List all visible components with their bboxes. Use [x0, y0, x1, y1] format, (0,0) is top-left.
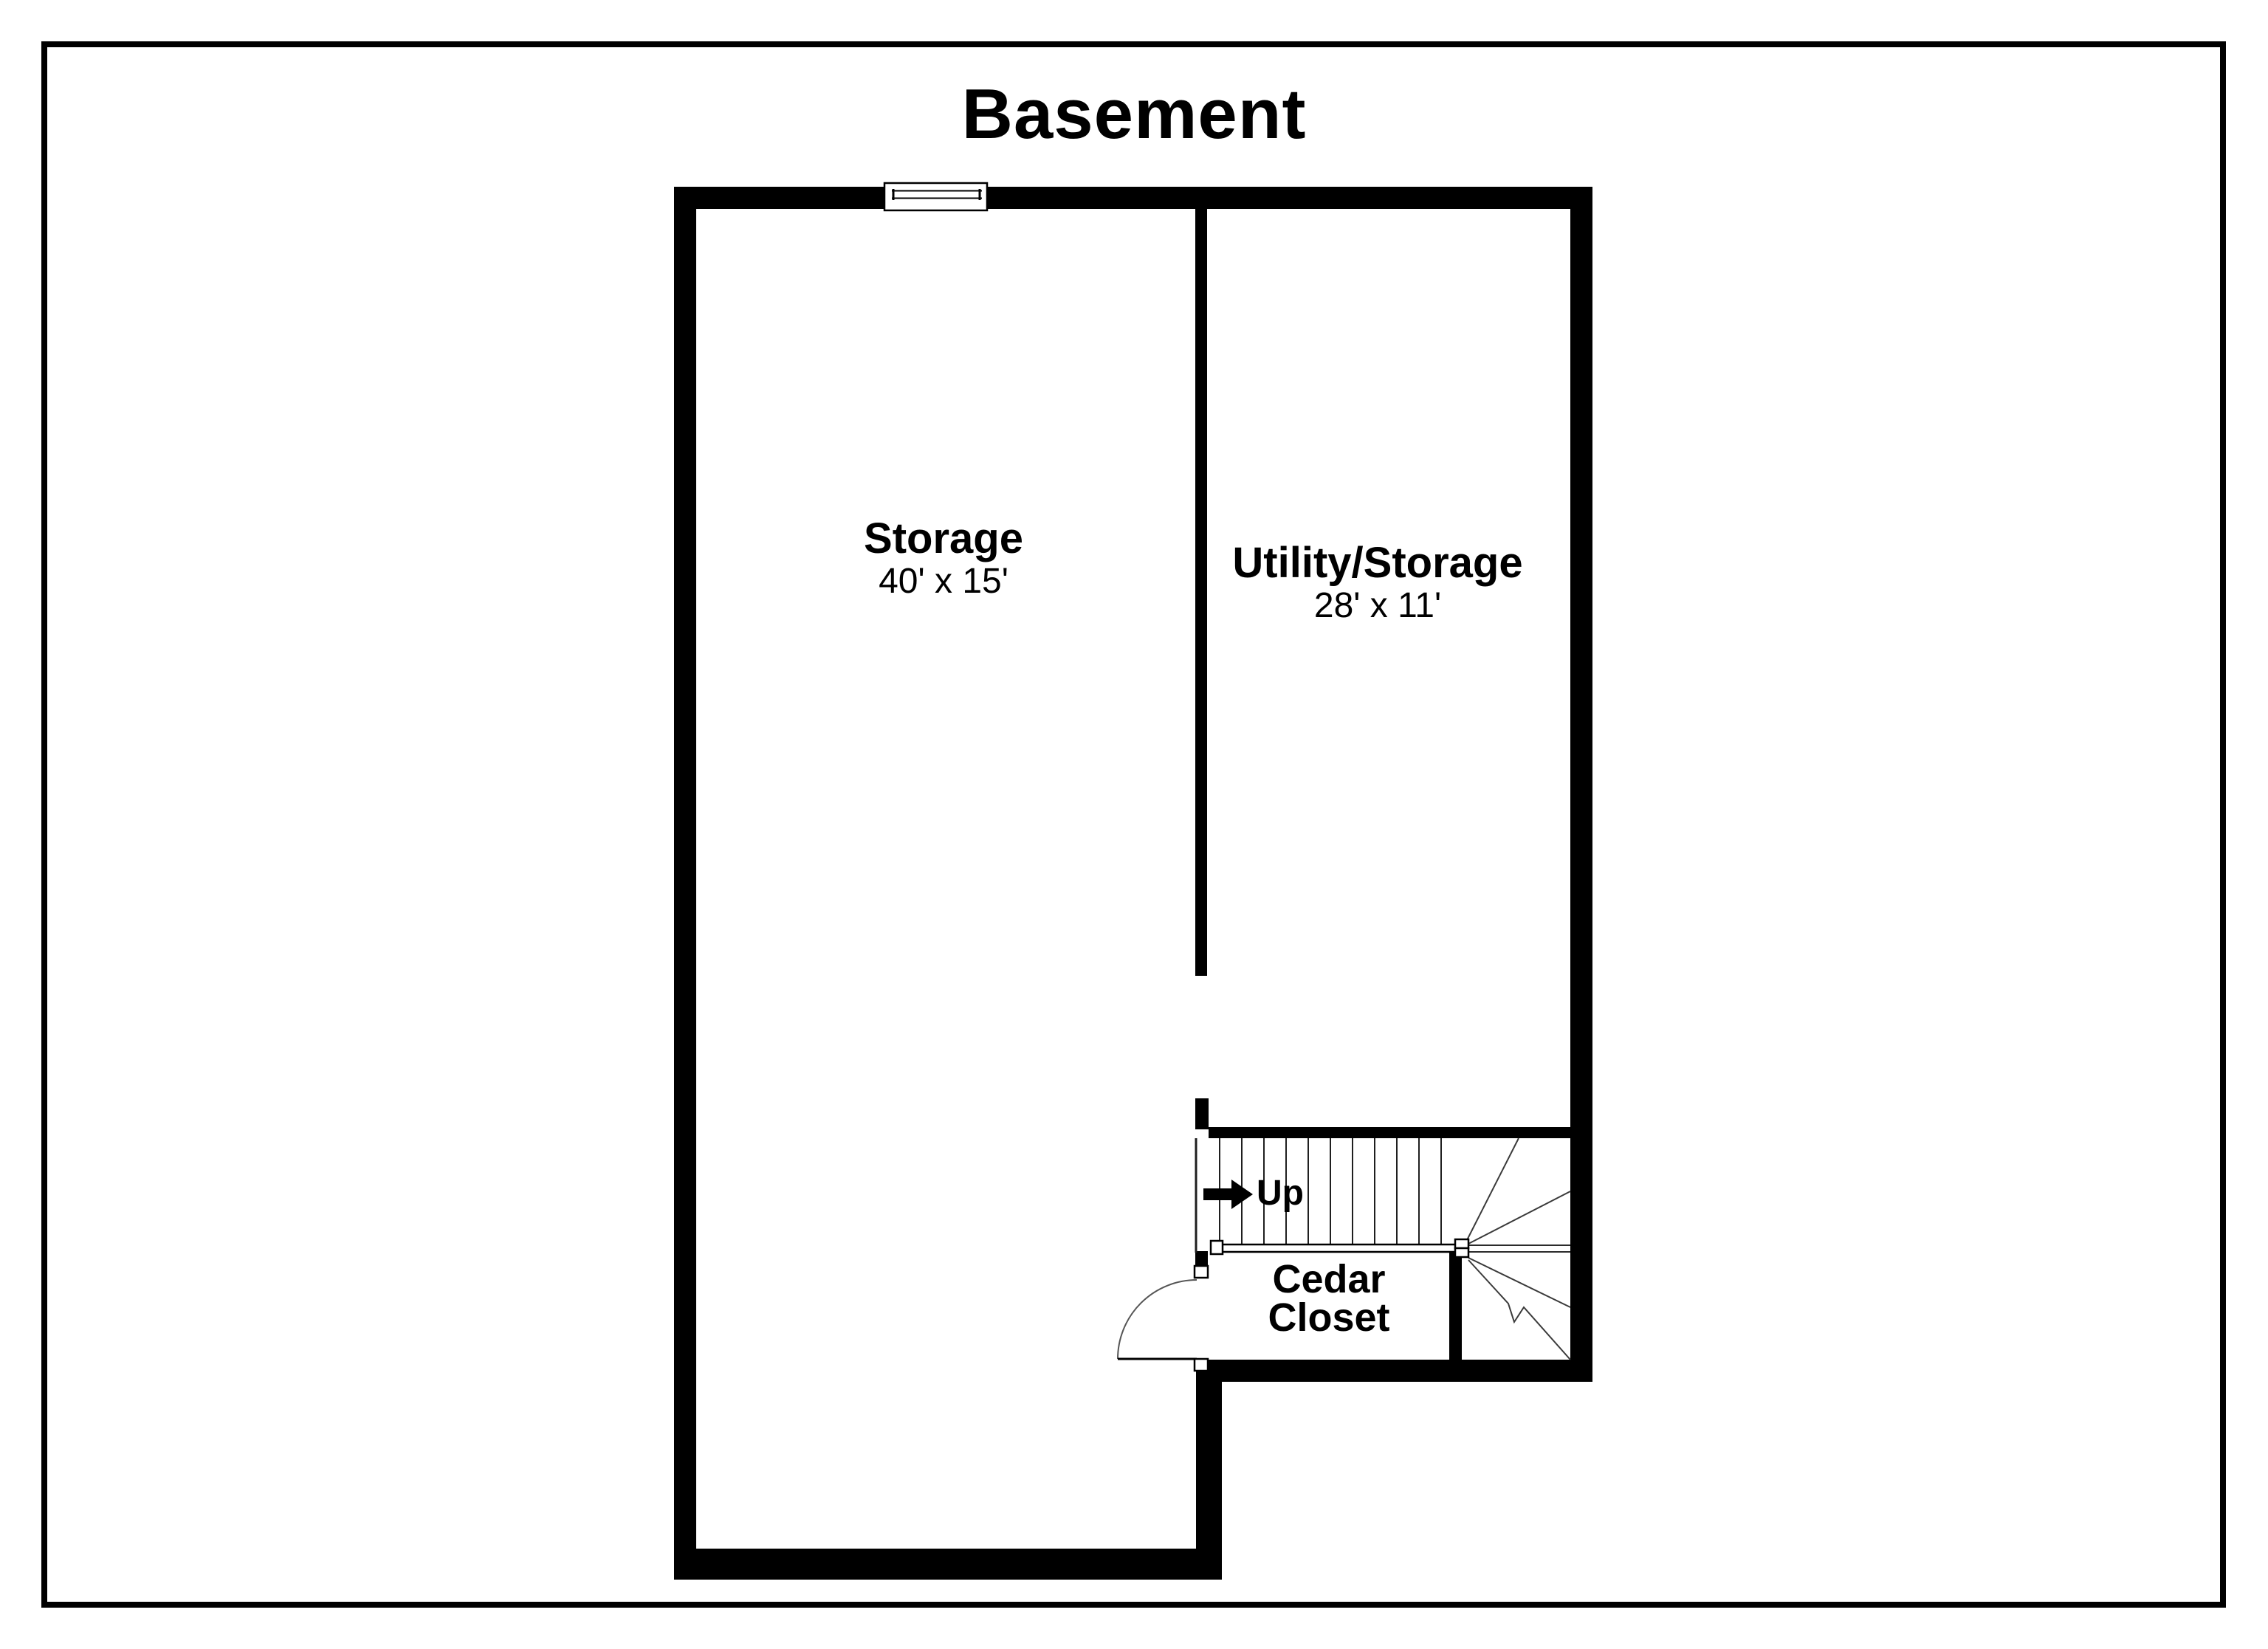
wall-stair-top — [1209, 1127, 1570, 1138]
wall-closet-right — [1449, 1253, 1462, 1360]
stair-post-left — [1211, 1241, 1223, 1254]
room-dimensions: 28' x 11' — [1156, 587, 1599, 625]
room-dimensions: 40' x 15' — [722, 562, 1165, 601]
stair-post-right-lower — [1455, 1248, 1468, 1257]
winder-treads-upper — [1465, 1138, 1570, 1245]
stair-break-line — [1468, 1260, 1570, 1360]
walls — [674, 187, 1592, 1580]
stair-posts — [1211, 1239, 1468, 1257]
window-icon — [884, 183, 987, 210]
wall-left — [674, 187, 696, 1580]
door-jamb-top — [1195, 1266, 1208, 1278]
stairs-up-label: Up — [1257, 1176, 1345, 1211]
room-label-storage: Storage 40' x 15' — [722, 517, 1165, 601]
wall-top — [674, 187, 1592, 209]
room-label-cedar-closet: Cedar Closet — [1248, 1260, 1410, 1337]
stair-post-right-upper — [1455, 1239, 1468, 1248]
stair-stringer — [1217, 1245, 1455, 1252]
winder-divider — [1468, 1245, 1570, 1252]
wall-closet-bottom — [1196, 1360, 1592, 1382]
room-name: Utility/Storage — [1156, 541, 1599, 585]
wall-stair-stub — [1195, 1098, 1209, 1129]
page-title: Basement — [0, 78, 2268, 151]
wall-door-stub — [1195, 1251, 1208, 1266]
door-jamb-bottom — [1195, 1359, 1208, 1371]
page-border — [44, 44, 2223, 1605]
up-arrow-icon — [1203, 1180, 1253, 1209]
door-swing-arc — [1118, 1280, 1197, 1359]
room-label-utility-storage: Utility/Storage 28' x 11' — [1156, 541, 1599, 625]
wall-right — [1570, 187, 1592, 1382]
door-swing-icon — [1118, 1266, 1208, 1371]
floor-plan-page: Basement Storage 40' x 15' Utility/Stora… — [0, 0, 2268, 1649]
wall-notch-step — [1196, 1360, 1222, 1580]
wall-bottom — [674, 1549, 1222, 1580]
room-name: Storage — [722, 517, 1165, 561]
winder-treads-lower — [1468, 1258, 1570, 1360]
floor-plan-drawing — [0, 0, 2268, 1649]
